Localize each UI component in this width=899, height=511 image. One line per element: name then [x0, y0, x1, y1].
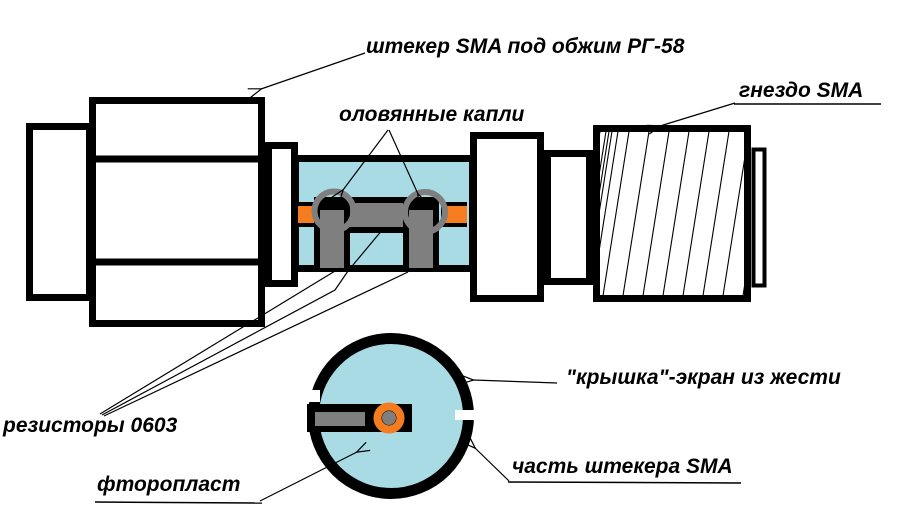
label-plug: штекер SMA под обжим РГ-58: [366, 35, 684, 59]
socket-knurled-body: [597, 129, 748, 299]
plug-coupling: [269, 146, 295, 284]
leader-plug-part: [475, 448, 509, 481]
plug-hex-body: [93, 101, 262, 324]
label-resistors: резисторы 0603: [3, 414, 177, 438]
plug-rear-part: [474, 136, 541, 299]
sma-attenuator-diagram: штекер SMA под обжим РГ-58 оловянные кап…: [0, 0, 899, 511]
cross-section-view: [301, 339, 475, 494]
center-pin-section: [378, 407, 401, 430]
label-cover: "крышка"-экран из жести: [566, 366, 841, 390]
label-socket: гнездо SMA: [739, 79, 863, 103]
cover-slot-left: [301, 390, 320, 402]
dielectric-block: [296, 159, 473, 272]
cable-end: [30, 127, 90, 298]
section-resistor: [315, 412, 365, 426]
underline-ptfe: [95, 502, 262, 503]
socket-end-pin: [754, 150, 765, 286]
leader-plug: [261, 53, 365, 89]
sma-plug-crimp-body: [30, 101, 295, 324]
label-tin-drops: оловянные капли: [339, 103, 524, 127]
socket-coupling: [548, 154, 590, 282]
leader-socket: [660, 103, 735, 126]
label-ptfe: фторопласт: [97, 473, 240, 497]
cover-slot-right: [455, 410, 475, 420]
resistor-left-0603: [314, 197, 350, 271]
leader-cover: [473, 380, 557, 383]
underline-plug-part: [508, 482, 741, 483]
sma-socket-assembly: [474, 125, 771, 302]
label-plug-part: часть штекера SMA: [512, 455, 733, 479]
